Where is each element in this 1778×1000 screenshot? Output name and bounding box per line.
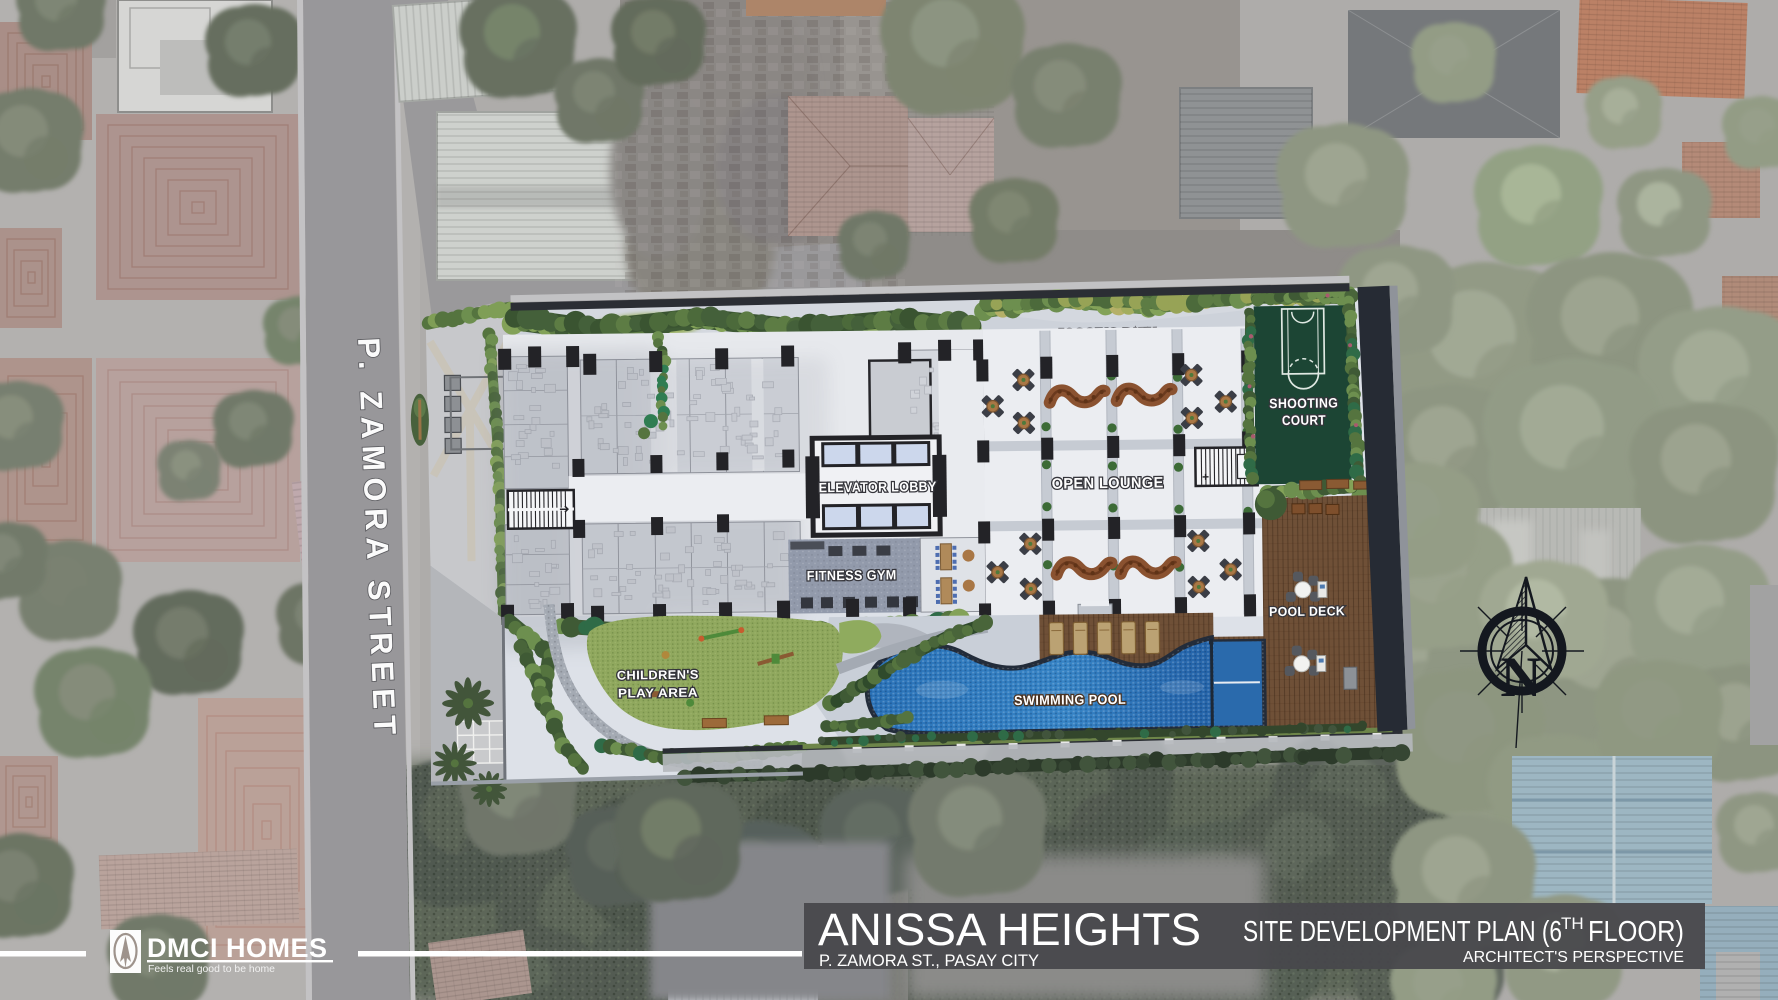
svg-text:N: N [1500,646,1541,709]
svg-text:ANISSA HEIGHTS: ANISSA HEIGHTS [818,904,1201,955]
svg-text:FITNESS GYM: FITNESS GYM [807,567,897,583]
svg-text:SITE DEVELOPMENT PLAN (6: SITE DEVELOPMENT PLAN (6 [1243,916,1562,948]
svg-text:P. ZAMORA ST., PASAY CITY: P. ZAMORA ST., PASAY CITY [819,952,1039,970]
svg-text:ELEVATOR LOBBY: ELEVATOR LOBBY [819,479,937,495]
svg-text:PLAY AREA: PLAY AREA [618,686,698,701]
svg-text:TH: TH [1561,914,1584,933]
svg-text:ARCHITECT'S PERSPECTIVE: ARCHITECT'S PERSPECTIVE [1463,949,1684,966]
svg-text:FLOOR): FLOOR) [1588,916,1684,948]
svg-text:SWIMMING POOL: SWIMMING POOL [1014,692,1126,708]
svg-text:Feels real good to be home: Feels real good to be home [148,963,275,975]
svg-text:OPEN LOUNGE: OPEN LOUNGE [1052,474,1164,492]
svg-text:CHILDREN'S: CHILDREN'S [617,668,699,683]
svg-text:SHOOTING: SHOOTING [1269,395,1338,411]
svg-text:POOL DECK: POOL DECK [1269,603,1345,619]
svg-text:DMCI HOMES: DMCI HOMES [147,933,328,963]
svg-text:COURT: COURT [1282,412,1326,428]
